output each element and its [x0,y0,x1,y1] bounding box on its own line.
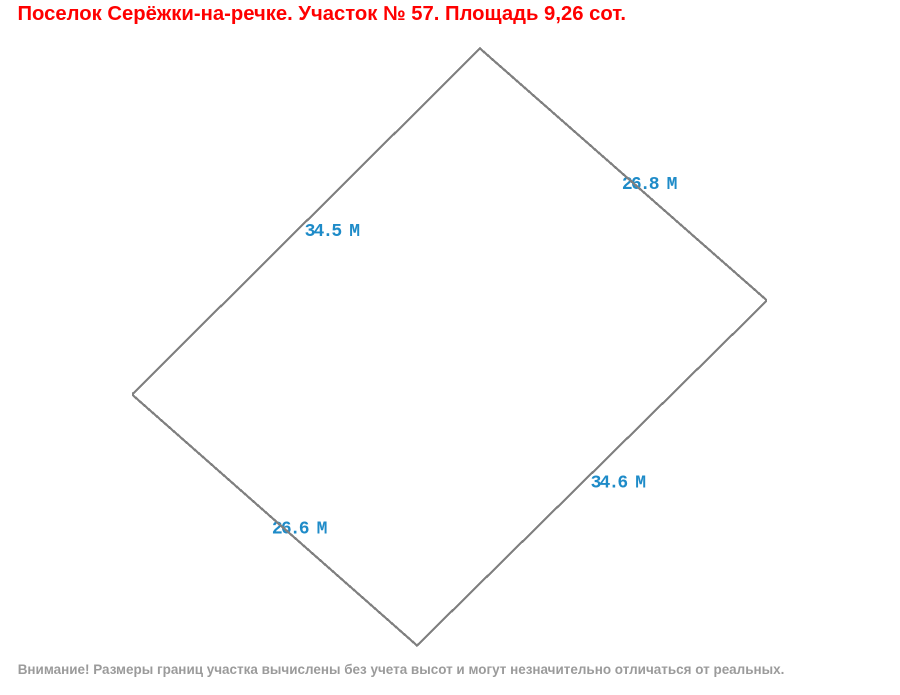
svg-text:34.6 М: 34.6 М [591,474,647,494]
svg-text:26.8 М: 26.8 М [622,175,678,195]
svg-text:34.5 М: 34.5 М [305,222,361,242]
svg-text:Внимание! Размеры границ участ: Внимание! Размеры границ участка вычисле… [18,662,785,677]
svg-text:Поселок Серёжки-на-речке. Учас: Поселок Серёжки-на-речке. Участок № 57. … [18,3,627,25]
svg-text:26.6 М: 26.6 М [272,520,328,540]
